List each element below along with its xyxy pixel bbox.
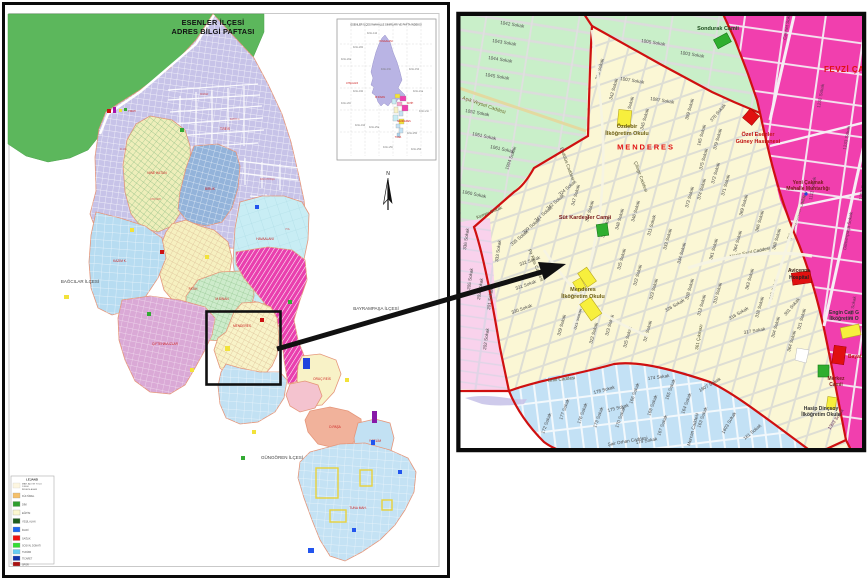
svg-text:F21c-20b: F21c-20b	[353, 46, 364, 49]
svg-text:MİMAR: MİMAR	[200, 93, 209, 96]
svg-text:BAYRAMPAŞA İLÇESİ: BAYRAMPAŞA İLÇESİ	[353, 305, 399, 311]
svg-text:F21c-14d: F21c-14d	[367, 32, 378, 35]
svg-text:İDARİ: İDARİ	[22, 529, 29, 532]
svg-text:N: N	[386, 171, 390, 177]
svg-text:YOL: YOL	[285, 228, 291, 231]
svg-text:Hospital: Hospital	[789, 275, 809, 281]
svg-text:M.SİNAN: M.SİNAN	[215, 296, 229, 301]
svg-text:F21c-25a: F21c-25a	[369, 126, 380, 129]
svg-text:İlköğretim Okulu: İlköğretim Okulu	[561, 293, 604, 300]
svg-text:İlköğretim O: İlköğretim O	[829, 315, 858, 322]
svg-text:SAĞLIK: SAĞLIK	[22, 538, 31, 541]
svg-text:HAVAALANI: HAVAALANI	[379, 40, 392, 43]
svg-text:F21c-19d: F21c-19d	[355, 124, 366, 127]
svg-text:BAĞCILAR İLÇESİ: BAĞCILAR İLÇESİ	[61, 278, 99, 284]
svg-text:T.REİS: T.REİS	[220, 126, 230, 131]
svg-text:F21c-19b: F21c-19b	[353, 90, 364, 93]
svg-text:FATİH: FATİH	[189, 286, 198, 291]
svg-text:İNDEKS ALANI: İNDEKS ALANI	[22, 488, 37, 491]
svg-text:MENDERES: MENDERES	[617, 143, 675, 152]
svg-text:F21c-25b: F21c-25b	[407, 132, 418, 135]
svg-text:GÜNGÖREN İLÇESİ: GÜNGÖREN İLÇESİ	[261, 454, 303, 460]
svg-text:Avicenna: Avicenna	[788, 268, 810, 274]
svg-text:Sondurak Camii: Sondurak Camii	[697, 26, 739, 32]
svg-text:ATIŞALANI: ATIŞALANI	[346, 82, 358, 85]
svg-text:ÇİFTEHAVUZLAR: ÇİFTEHAVUZLAR	[152, 341, 179, 346]
svg-text:F21c-20a: F21c-20a	[341, 58, 352, 61]
svg-text:HAVAALANI: HAVAALANI	[256, 237, 274, 241]
svg-text:FATİH C.: FATİH C.	[230, 118, 240, 121]
svg-text:Y.MAH: Y.MAH	[128, 110, 136, 113]
svg-text:DİNİ: DİNİ	[22, 504, 27, 507]
svg-text:Süt Kardeşler Camii: Süt Kardeşler Camii	[559, 215, 612, 221]
svg-text:YEŞİL ALAN: YEŞİL ALAN	[22, 521, 36, 524]
svg-text:D.100: D.100	[120, 148, 127, 151]
svg-text:ATATÜRK: ATATÜRK	[150, 198, 161, 201]
svg-text:ORUÇ REİS: ORUÇ REİS	[313, 376, 331, 381]
svg-text:M.SİNAN: M.SİNAN	[375, 96, 385, 99]
svg-text:SPOR: SPOR	[22, 564, 29, 567]
svg-text:Güney Hastanesi: Güney Hastanesi	[736, 139, 781, 145]
svg-text:D.PAŞA: D.PAŞA	[329, 425, 341, 429]
svg-text:İlköğretim Okulu: İlköğretim Okulu	[605, 130, 648, 137]
svg-text:MAH. ADI VE YOLU: MAH. ADI VE YOLU	[22, 483, 42, 486]
svg-text:FEVZİ ÇAKMAK: FEVZİ ÇAKMAK	[824, 65, 868, 74]
svg-text:F21c-15c: F21c-15c	[381, 68, 392, 71]
svg-text:Camii: Camii	[829, 382, 843, 388]
svg-text:MENDERES: MENDERES	[233, 324, 251, 328]
svg-text:LEJAND: LEJAND	[26, 478, 39, 482]
svg-text:Menderes: Menderes	[570, 287, 596, 293]
svg-text:DAVUTPAŞA: DAVUTPAŞA	[260, 178, 275, 181]
svg-text:Özel Esenler: Özel Esenler	[741, 131, 775, 138]
svg-text:ESENLER İLÇESİ: ESENLER İLÇESİ	[182, 18, 245, 27]
svg-text:F21c-15d: F21c-15d	[409, 68, 420, 71]
svg-text:TURİZM: TURİZM	[22, 551, 31, 554]
svg-text:F21c-21a: F21c-21a	[413, 90, 424, 93]
svg-text:Y.SELİM: Y.SELİM	[369, 438, 382, 443]
svg-text:F21c-20c: F21c-20c	[341, 102, 352, 105]
svg-text:İlköğretim Okulu: İlköğretim Okulu	[801, 411, 840, 418]
svg-text:EĞİTİM: EĞİTİM	[22, 512, 30, 515]
svg-text:Mahalle Muhtarlığı: Mahalle Muhtarlığı	[786, 186, 830, 192]
svg-text:F21c-25c: F21c-25c	[383, 146, 394, 149]
svg-text:ADRES BİLGİ PAFTASI: ADRES BİLGİ PAFTASI	[172, 27, 255, 36]
svg-text:TUNA MAH.: TUNA MAH.	[349, 506, 366, 510]
svg-text:TUNA: TUNA	[395, 136, 402, 139]
svg-text:NİNE HATUN: NİNE HATUN	[147, 170, 167, 175]
svg-text:KAZIM K.: KAZIM K.	[113, 259, 127, 263]
svg-text:Özdebir: Özdebir	[617, 123, 638, 130]
svg-text:F21c-25d: F21c-25d	[411, 148, 422, 151]
svg-text:SOSYAL DONATI: SOSYAL DONATI	[22, 545, 41, 548]
svg-text:TİCARET: TİCARET	[22, 558, 33, 561]
svg-text:MENDERES: MENDERES	[397, 120, 411, 123]
svg-text:FATİH: FATİH	[407, 102, 414, 105]
svg-text:F21c-21c: F21c-21c	[419, 110, 430, 113]
svg-text:KÜLTÜREL: KÜLTÜREL	[22, 495, 35, 498]
svg-text:BİRLİK: BİRLİK	[205, 186, 216, 191]
